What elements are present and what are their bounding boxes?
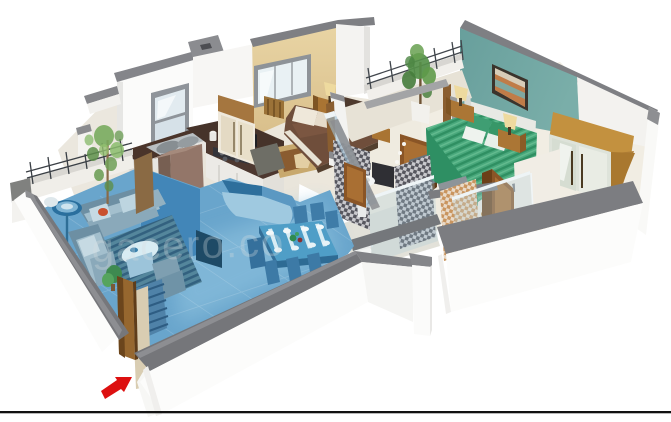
svg-text:gacero.co: gacero.co	[91, 220, 286, 271]
